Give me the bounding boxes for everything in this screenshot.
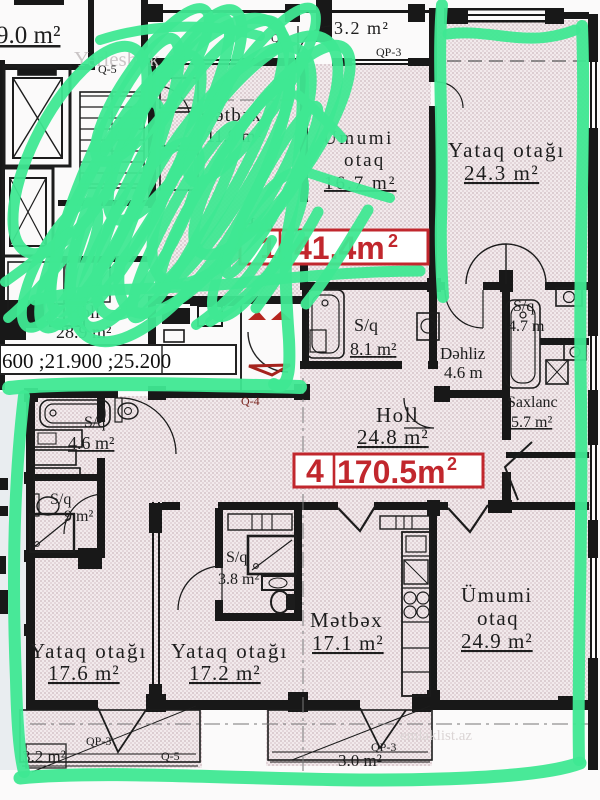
svg-text:otaq: otaq xyxy=(344,150,386,171)
svg-text:2: 2 xyxy=(388,231,398,251)
svg-text:Ümumi: Ümumi xyxy=(461,583,533,607)
svg-text:3.8 m²: 3.8 m² xyxy=(218,571,259,588)
svg-text:Mətbəx: Mətbəx xyxy=(310,608,383,632)
svg-text:Q-5: Q-5 xyxy=(98,62,117,76)
svg-text:otaq: otaq xyxy=(477,606,519,630)
svg-text:170.5m: 170.5m xyxy=(337,454,446,490)
svg-text:5.7 m²: 5.7 m² xyxy=(511,414,552,431)
svg-text:24.8 m²: 24.8 m² xyxy=(357,425,429,449)
svg-text:8.1 m²: 8.1 m² xyxy=(350,339,396,359)
svg-text:S/q: S/q xyxy=(84,414,105,431)
svg-text:Dəhliz: Dəhliz xyxy=(440,344,486,363)
svg-text:Holl: Holl xyxy=(376,403,419,427)
svg-text:S/q: S/q xyxy=(226,549,247,566)
svg-text:S/q: S/q xyxy=(513,298,534,315)
svg-text:3.0 m²: 3.0 m² xyxy=(338,751,382,770)
svg-text:S/q: S/q xyxy=(50,491,71,508)
svg-text:Yataq otağı: Yataq otağı xyxy=(171,639,288,663)
svg-text:3.2 m²: 3.2 m² xyxy=(334,18,389,38)
svg-text:600 ;21.900 ;25.200: 600 ;21.900 ;25.200 xyxy=(2,349,171,373)
svg-text:3.2 m²: 3.2 m² xyxy=(22,747,66,766)
svg-text:4.6 m²: 4.6 m² xyxy=(68,433,114,453)
svg-text:24.3 m²: 24.3 m² xyxy=(464,161,539,185)
svg-text:Yataq otağı: Yataq otağı xyxy=(30,639,147,663)
svg-text:QP-3: QP-3 xyxy=(376,45,401,59)
svg-text:9.0 m²: 9.0 m² xyxy=(0,22,60,49)
svg-text:Yataq otağı: Yataq otağı xyxy=(448,138,565,162)
svg-text:24.9 m²: 24.9 m² xyxy=(461,629,533,653)
svg-text:Q-4: Q-4 xyxy=(241,394,260,408)
svg-text:9 m²: 9 m² xyxy=(64,508,93,525)
svg-text:4.6 m: 4.6 m xyxy=(444,363,483,382)
svg-text:Saxlanc: Saxlanc xyxy=(507,394,558,411)
svg-text:17.6 m²: 17.6 m² xyxy=(48,661,120,685)
svg-text:S/q: S/q xyxy=(354,315,378,335)
svg-text:2: 2 xyxy=(447,454,457,474)
svg-text:17.1 m²: 17.1 m² xyxy=(312,631,384,655)
svg-text:emlaklist.az: emlaklist.az xyxy=(400,728,472,744)
svg-text:QP-3: QP-3 xyxy=(86,734,111,748)
svg-text:4: 4 xyxy=(306,453,324,489)
svg-text:4.7 m: 4.7 m xyxy=(508,318,545,335)
svg-text:Q-5: Q-5 xyxy=(161,749,180,763)
svg-text:17.2 m²: 17.2 m² xyxy=(189,661,261,685)
